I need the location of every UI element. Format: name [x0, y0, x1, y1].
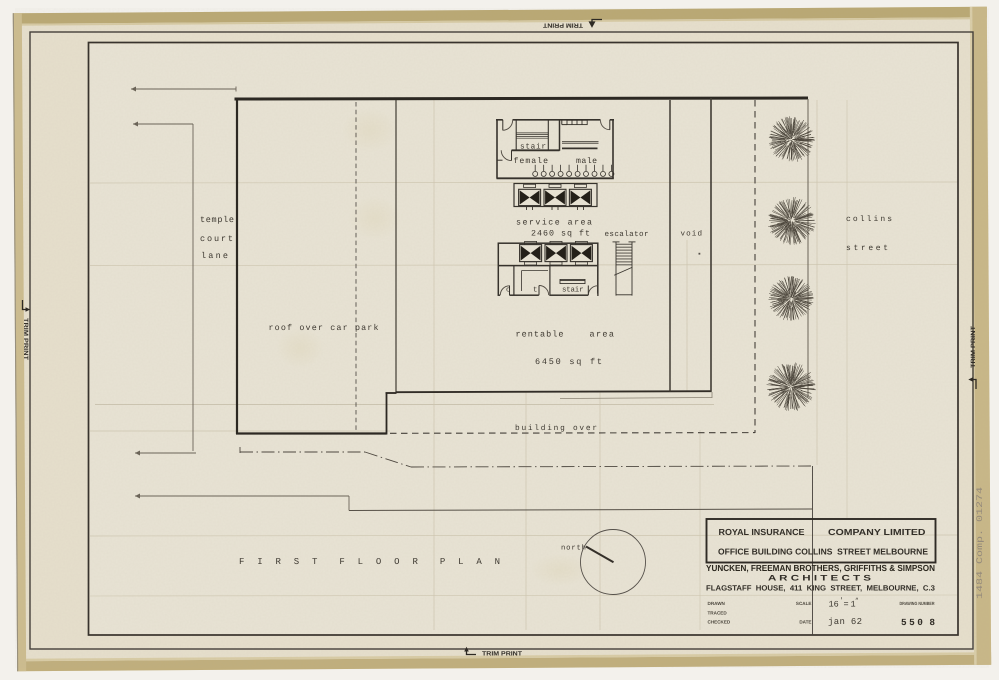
svg-text:“: “ [855, 597, 859, 604]
svg-text:female: female [514, 157, 549, 166]
svg-text:temple: temple [200, 215, 234, 225]
svg-text:DATE: DATE [799, 620, 811, 625]
svg-text:COMPANY LIMITED: COMPANY LIMITED [828, 527, 926, 537]
svg-text:escalator: escalator [605, 230, 649, 239]
svg-text:6450 sq ft: 6450 sq ft [535, 357, 602, 367]
svg-text:jan 62: jan 62 [828, 617, 862, 627]
svg-text:service area: service area [516, 218, 592, 228]
svg-text:16: 16 [829, 600, 839, 610]
svg-text:male: male [576, 157, 597, 166]
svg-text:area: area [590, 330, 615, 340]
svg-text:FLAGSTAFF HOUSE, 411 KING: FLAGSTAFF HOUSE, 411 KING STREET, MELBOU… [706, 584, 935, 593]
svg-text:void: void [681, 230, 703, 239]
svg-text:SCALE: SCALE [796, 601, 812, 606]
svg-text:TRIM PRINT: TRIM PRINT [22, 318, 29, 360]
svg-text:CHECKED: CHECKED [708, 620, 731, 625]
svg-text:TRIM PRINT: TRIM PRINT [543, 22, 583, 29]
svg-text:roof over car park: roof over car park [269, 323, 379, 333]
svg-text:stair: stair [562, 286, 584, 295]
svg-text:F I R S T F L O O R P L A N: F I R S T F L O O R P L A N [239, 557, 500, 567]
svg-text:ROYAL INSURANCE: ROYAL INSURANCE [719, 527, 805, 537]
svg-text:=: = [844, 600, 849, 610]
svg-text:court: court [200, 234, 233, 244]
svg-text:t: t [533, 287, 537, 295]
svg-text:TRIM PRINT: TRIM PRINT [970, 326, 977, 368]
svg-text:5 5 0 8: 5 5 0 8 [901, 617, 935, 628]
svg-text:A R C H I T E C T S: A R C H I T E C T S [768, 574, 872, 583]
svg-text:TRACED: TRACED [708, 611, 728, 616]
svg-text:DRAWN: DRAWN [708, 601, 726, 606]
svg-text:DRAWING NUMBER: DRAWING NUMBER [900, 601, 936, 606]
svg-text:YUNCKEN, FREEMAN BROTHERS, GRI: YUNCKEN, FREEMAN BROTHERS, GRIFFITHS & S… [706, 563, 935, 573]
svg-text:1484 Comp. 01274: 1484 Comp. 01274 [975, 487, 985, 599]
svg-text:rentable: rentable [516, 330, 564, 340]
svg-text:2460 sq ft: 2460 sq ft [531, 229, 590, 239]
svg-text:TRIM PRINT: TRIM PRINT [482, 651, 522, 658]
svg-text:OFFICE BUILDING COLLINS STREE: OFFICE BUILDING COLLINS STREET MELBOURNE [718, 547, 928, 557]
